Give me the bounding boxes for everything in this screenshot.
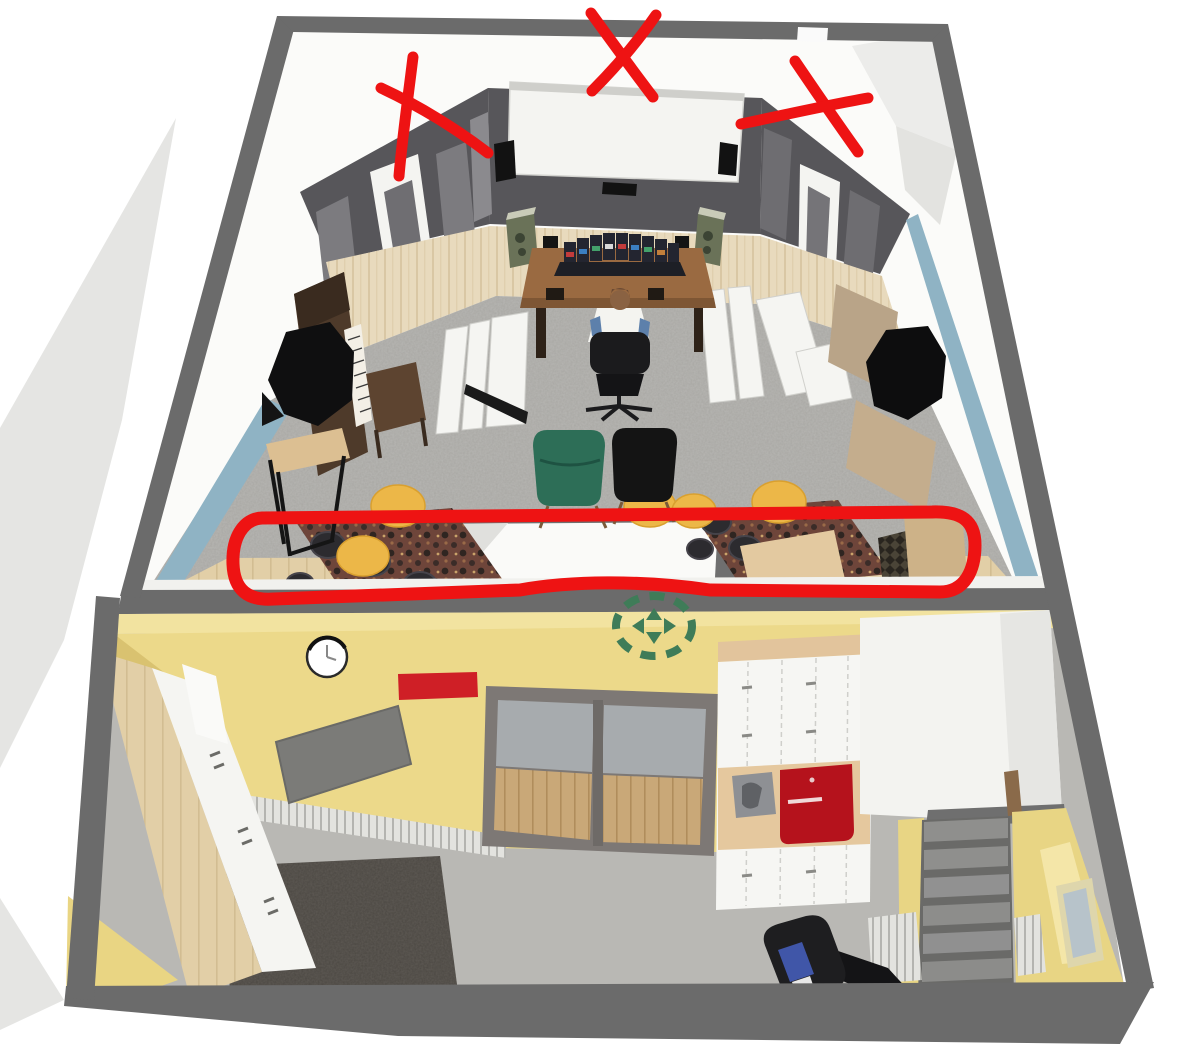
desk-rack: [546, 288, 564, 300]
red-wall-panel: [398, 672, 478, 700]
speaker-right-icon: [718, 142, 738, 176]
floorplan-render: [0, 0, 1200, 1045]
hobby-room: [66, 596, 1124, 1000]
scene-canvas: [0, 0, 1200, 1045]
office-chair-seat: [596, 374, 644, 396]
cushion: [337, 536, 389, 576]
glass-pane-right: [602, 705, 706, 777]
door-wood-lower-left: [494, 768, 592, 840]
red-cabinet: [780, 764, 854, 844]
console-base: [554, 262, 686, 276]
door-wood-lower-right: [600, 775, 703, 845]
wall-clock: [307, 637, 347, 677]
wingback-chair-black: [612, 428, 677, 502]
white-stair-enclosure: [860, 610, 1066, 826]
speaker-center-icon: [602, 182, 637, 196]
cabinet-run: [716, 634, 874, 910]
speaker-left-icon: [494, 140, 516, 182]
desk-rack: [648, 288, 664, 300]
door-mullion: [593, 700, 603, 846]
office-chair-back: [590, 332, 650, 374]
top-wall-gap: [797, 27, 828, 42]
wingback-chair-green: [533, 430, 605, 506]
person-head: [610, 290, 630, 310]
sliding-glass-door: [482, 686, 718, 856]
glass-pane-left: [496, 700, 594, 772]
